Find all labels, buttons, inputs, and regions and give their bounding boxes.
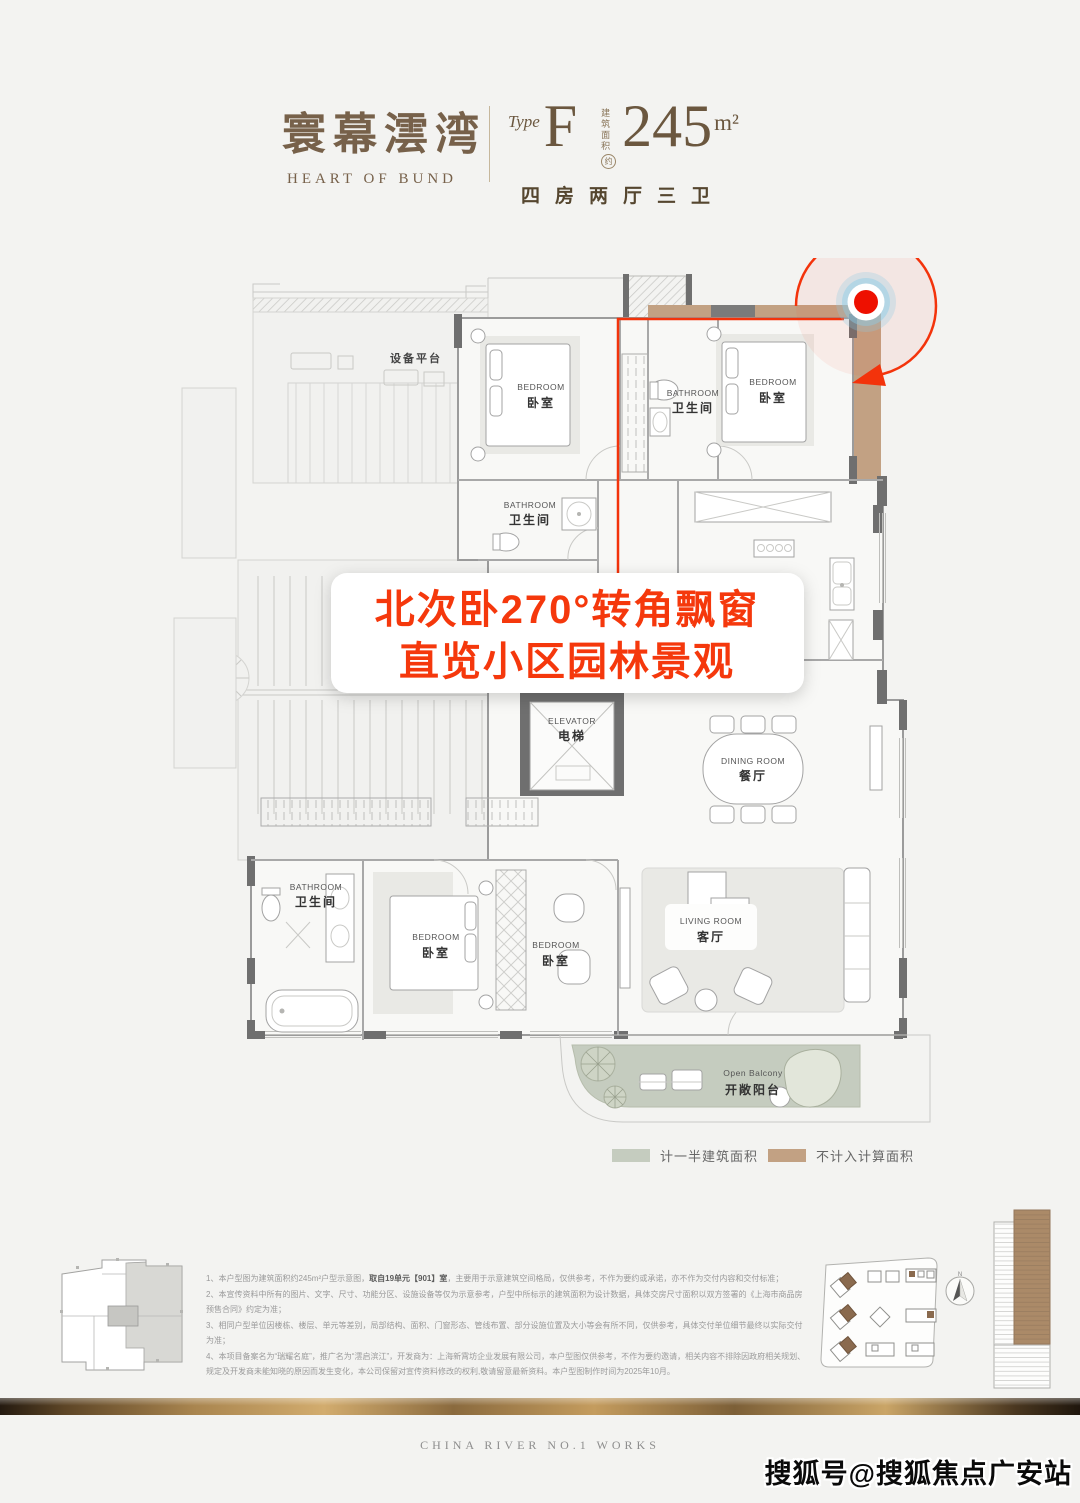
closet-column [496, 870, 526, 1010]
disclaimer-line-2: 2、本宣传资料中所有的图片、文字、尺寸、功能分区、设施设备等仅为示意参考，户型中… [206, 1287, 806, 1318]
svg-text:Open Balcony: Open Balcony [723, 1068, 783, 1078]
legend-excluded-swatch [768, 1149, 806, 1162]
svg-text:卫生间: 卫生间 [672, 400, 714, 415]
north-label: N [958, 1272, 962, 1278]
disclaimer-line-4: 4、本项目备案名为“瑞耀名庭”，推广名为“澐启滨江”，开发商为：上海新霄坊企业发… [206, 1349, 806, 1380]
disclaimer-line-3: 3、相同户型单位因楼栋、楼层、单元等差别，局部结构、面积、门窗形态、管线布置、部… [206, 1318, 806, 1349]
closet-master-b [466, 798, 538, 826]
type-prefix: Type [508, 112, 540, 132]
area-label: 建筑 面积 约 [601, 108, 616, 169]
project-logo-cn: 寰幕澐湾 [282, 98, 462, 162]
annotation-callout: 北次卧270°转角飘窗 直览小区园林景观 [331, 573, 804, 693]
svg-text:卧室: 卧室 [422, 945, 450, 960]
annotation-line2: 直览小区园林景观 [399, 640, 735, 684]
svg-text:BEDROOM: BEDROOM [517, 382, 564, 392]
header-divider [489, 106, 490, 182]
equipment-platform-label: 设备平台 [390, 351, 442, 365]
project-logo: 寰幕澐湾 HEART OF BUND [282, 98, 462, 188]
legend-half-area-label: 计一半建筑面积 [660, 1146, 758, 1165]
floorplan-svg: ELEVATOR 电梯 BEDROOM 卧室 BEDROOM 卧室 BATHRO… [168, 258, 958, 1143]
svg-text:卫生间: 卫生间 [509, 512, 551, 527]
svg-text:BEDROOM: BEDROOM [412, 932, 459, 942]
area-unit: m² [714, 110, 739, 136]
legend-excluded-label: 不计入计算面积 [816, 1146, 914, 1165]
legend-half-area-swatch [612, 1149, 650, 1162]
legend-excluded: 不计入计算面积 [768, 1148, 914, 1162]
key-plan-diagram [46, 1250, 198, 1380]
svg-text:DINING ROOM: DINING ROOM [721, 756, 785, 766]
wardrobe-nw [622, 354, 648, 472]
project-logo-en: HEART OF BUND [282, 171, 462, 188]
bedroom-northeast: BEDROOM 卧室 [707, 327, 814, 457]
svg-text:卫生间: 卫生间 [295, 894, 337, 909]
type-letter: F [544, 96, 577, 156]
approx-badge: 约 [601, 154, 616, 169]
svg-text:LIVING ROOM: LIVING ROOM [680, 916, 742, 926]
area-value: 245 [622, 96, 712, 156]
gold-gradient-bar [0, 1398, 1080, 1415]
elevator-label-en: ELEVATOR [548, 716, 596, 726]
sohu-watermark: 搜狐号@搜狐焦点广安站 [765, 1452, 1072, 1491]
svg-text:BATHROOM: BATHROOM [504, 500, 556, 510]
svg-text:卧室: 卧室 [542, 953, 570, 968]
svg-text:BATHROOM: BATHROOM [290, 882, 342, 892]
open-balcony: Open Balcony 开敞阳台 [560, 1035, 930, 1122]
svg-text:卧室: 卧室 [759, 390, 787, 405]
series-title: CHINA RIVER NO.1 WORKS [0, 1438, 1080, 1453]
svg-text:卧室: 卧室 [527, 395, 555, 410]
svg-text:客厅: 客厅 [696, 929, 725, 944]
living-room: LIVING ROOM 客厅 [620, 868, 870, 1012]
svg-text:BEDROOM: BEDROOM [532, 940, 579, 950]
north-arrow: N [946, 1272, 974, 1305]
elevator: ELEVATOR 电梯 [530, 702, 614, 790]
site-plan-diagram: N [810, 1253, 988, 1388]
svg-text:BATHROOM: BATHROOM [667, 388, 719, 398]
bedroom-northwest: BEDROOM 卧室 [471, 329, 580, 461]
building-stack-diagram [988, 1208, 1058, 1390]
disclaimer-text: 1、本户型图为建筑面积约245m²户型示意图，取自19单元【901】室，主要用于… [206, 1271, 806, 1380]
svg-text:餐厅: 餐厅 [739, 768, 767, 783]
svg-text:BEDROOM: BEDROOM [749, 377, 796, 387]
legend-half-area: 计一半建筑面积 [612, 1148, 758, 1162]
elevator-label-cn: 电梯 [558, 728, 586, 743]
flyer-page: 寰幕澐湾 HEART OF BUND Type F 建筑 面积 约 245 m²… [0, 0, 1080, 1503]
svg-text:开敞阳台: 开敞阳台 [725, 1082, 781, 1097]
unit-type-block: Type F 建筑 面积 约 245 m² 四房两厅三卫 [508, 96, 738, 208]
closet-master-a [261, 798, 431, 826]
layout-description: 四房两厅三卫 [508, 181, 738, 208]
annotation-line1: 北次卧270°转角飘窗 [375, 588, 760, 632]
disclaimer-line-1: 1、本户型图为建筑面积约245m²户型示意图，取自19单元【901】室，主要用于… [206, 1271, 806, 1287]
